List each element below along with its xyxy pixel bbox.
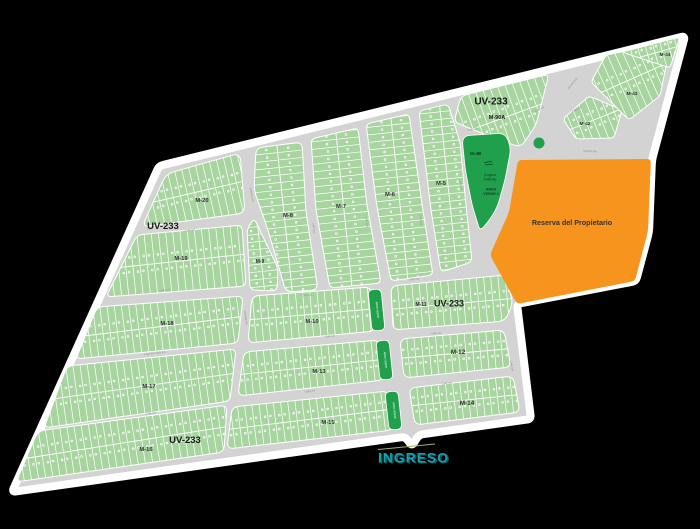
svg-text:VERDE 1: VERDE 1 (483, 192, 499, 196)
svg-text:M-16: M-16 (139, 447, 153, 453)
svg-text:M-6: M-6 (385, 192, 396, 198)
svg-text:UV-233: UV-233 (147, 221, 179, 232)
svg-text:M-10: M-10 (305, 319, 318, 325)
svg-text:UV-233: UV-233 (474, 97, 508, 108)
svg-text:M-7: M-7 (336, 204, 346, 210)
svg-text:M-19: M-19 (174, 256, 188, 262)
svg-text:M-90A: M-90A (489, 115, 506, 121)
svg-text:M-8: M-8 (283, 213, 294, 219)
svg-text:M-43: M-43 (627, 91, 638, 97)
svg-text:M-9: M-9 (256, 259, 265, 265)
svg-text:M-42: M-42 (580, 121, 591, 127)
svg-text:UV-233: UV-233 (169, 435, 201, 446)
svg-text:M-12: M-12 (451, 349, 466, 356)
svg-text:M-14: M-14 (460, 400, 475, 407)
svg-text:Calle 5/A: Calle 5/A (302, 293, 313, 298)
svg-text:M-20: M-20 (195, 198, 208, 204)
svg-text:(Laguna: (Laguna (484, 173, 496, 177)
svg-text:M-13: M-13 (312, 369, 326, 375)
svg-text:M-17: M-17 (142, 384, 155, 390)
svg-text:M-11: M-11 (415, 302, 426, 308)
svg-text:UV-233: UV-233 (434, 299, 464, 309)
svg-text:Reserva del Propietario: Reserva del Propietario (532, 218, 613, 227)
svg-text:M-4B: M-4B (470, 151, 482, 156)
svg-text:Artificial): Artificial) (484, 178, 497, 182)
svg-text:AREA: AREA (486, 188, 497, 192)
svg-text:M-18: M-18 (160, 321, 174, 327)
svg-text:INGRESO: INGRESO (378, 450, 449, 466)
svg-text:M-5: M-5 (436, 181, 447, 187)
svg-text:M-44: M-44 (660, 52, 671, 58)
svg-text:M-15: M-15 (321, 420, 335, 426)
